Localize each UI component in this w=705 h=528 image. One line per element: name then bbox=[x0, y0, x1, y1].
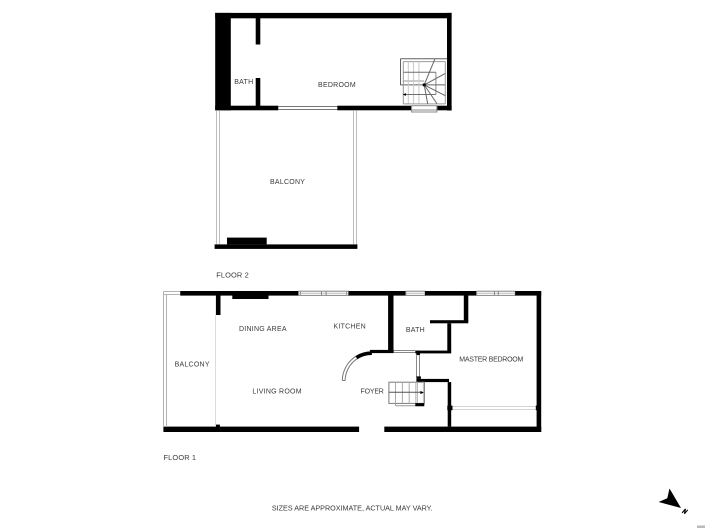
svg-text:MASTER BEDROOM: MASTER BEDROOM bbox=[459, 356, 523, 363]
svg-text:BEDROOM: BEDROOM bbox=[318, 82, 356, 89]
svg-text:SIZES ARE APPROXIMATE, ACTUAL: SIZES ARE APPROXIMATE, ACTUAL MAY VARY. bbox=[272, 504, 433, 513]
svg-text:LIVING ROOM: LIVING ROOM bbox=[252, 388, 301, 395]
svg-text:FOYER: FOYER bbox=[361, 388, 384, 395]
svg-text:DINING AREA: DINING AREA bbox=[239, 326, 287, 333]
svg-text:BALCONY: BALCONY bbox=[270, 179, 305, 186]
svg-text:BALCONY: BALCONY bbox=[175, 361, 210, 368]
svg-text:BATH: BATH bbox=[406, 327, 425, 334]
svg-text:FLOOR 1: FLOOR 1 bbox=[164, 453, 197, 462]
svg-text:KITCHEN: KITCHEN bbox=[333, 324, 365, 331]
svg-text:BATH: BATH bbox=[234, 79, 253, 86]
svg-text:FLOOR 2: FLOOR 2 bbox=[216, 270, 249, 279]
